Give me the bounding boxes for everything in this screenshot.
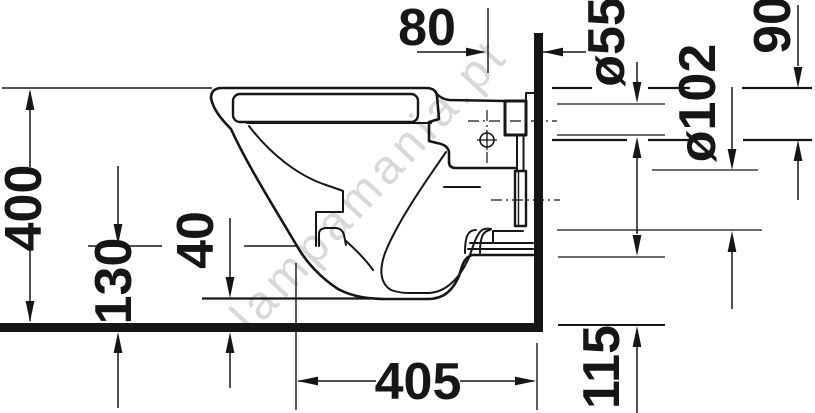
dim-arrow-icon [226,332,235,353]
dim-arrow-icon [794,67,803,88]
dim-arrow-icon [297,377,318,386]
technical-drawing-canvas: lampamania.pt [0,0,815,413]
dim-arrow-icon [794,140,803,161]
dim-arrow-icon [728,149,737,170]
dim-label-130: 130 [85,238,143,325]
dim-arrow-icon [466,48,486,57]
dim-arrow-icon [543,48,563,57]
dim-arrow-icon [26,301,35,322]
seat-lid [233,94,418,122]
drain-connector [515,171,526,226]
trapway-line [381,152,491,293]
ext-outlet-pipe [557,170,762,230]
fixing-target-cross-icon [477,130,497,150]
toilet-dimension-diagram: 80 405 400 130 40 ø55 ø102 90 115 [0,0,815,413]
dim-arrow-icon [226,277,235,298]
dim-label-115: 115 [573,325,631,409]
dim-arrow-icon [114,332,123,353]
dim-arrow-icon [515,377,536,386]
flush-pipe-lines [517,135,524,170]
dim-arrow-icon [633,137,642,158]
wall-step-line [526,93,534,101]
lug-to-trap-line [346,241,373,270]
dim-label-405: 405 [375,353,462,411]
front-mounting-lug [319,228,346,246]
dim-arrow-icon [26,89,35,110]
dim-arrow-icon [728,231,737,252]
toilet-back-top-slope [436,93,505,101]
floor-section [0,323,543,332]
dim-label-90: 90 [744,0,802,54]
dim-arrow-icon [633,235,642,256]
dim-label-40: 40 [167,211,225,269]
wall-section [534,33,543,332]
dim-label-400: 400 [0,165,53,252]
dim-label-80: 80 [398,0,456,57]
dim-arrow-icon [633,326,642,347]
dim-label-dia-102: ø102 [669,44,727,163]
toilet-body [211,88,534,299]
ext-supply-pipe [557,104,665,135]
dim-label-dia-55: ø55 [578,0,636,87]
supply-connector [505,101,526,135]
